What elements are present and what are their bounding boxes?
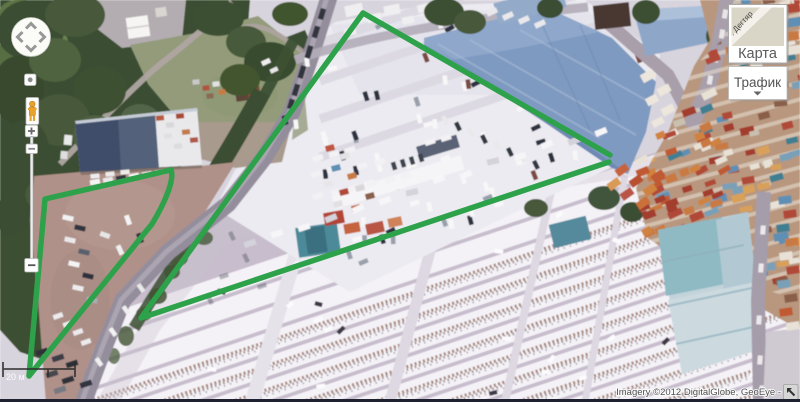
svg-text:Трафик: Трафик xyxy=(734,75,781,90)
svg-text:Карта: Карта xyxy=(738,46,778,62)
svg-text:Imagery ©2012 DigitalGlobe, Ge: Imagery ©2012 DigitalGlobe, GeoEye - xyxy=(616,387,781,398)
svg-text:20 м: 20 м xyxy=(6,372,25,382)
